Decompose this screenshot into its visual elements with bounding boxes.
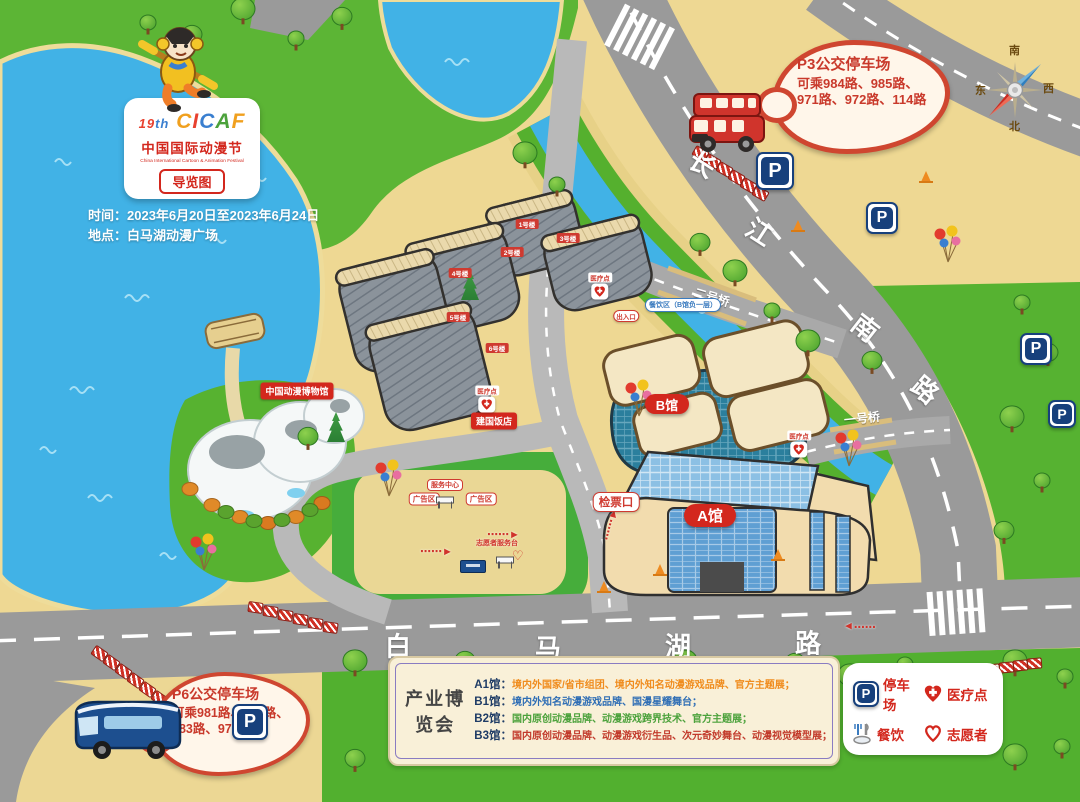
tree-icon <box>298 427 319 450</box>
tree-icon <box>332 7 353 30</box>
brand-letter: C <box>176 110 192 133</box>
medical-heart-icon <box>594 286 607 298</box>
hall-number-tag: 3号楼 <box>557 233 580 243</box>
balloons-icon <box>185 532 223 579</box>
ticket-gate-label: 检票口 <box>593 492 640 512</box>
heart-outline-icon <box>923 724 943 743</box>
road-name-char: 路 <box>795 624 821 661</box>
tree-icon <box>690 233 711 256</box>
compass-north-label: 北 <box>1009 118 1020 134</box>
bush-icon <box>246 514 263 528</box>
traffic-cone-icon <box>599 581 609 592</box>
direction-arrow-icon: ⋯⋯► <box>420 545 453 558</box>
bush-icon <box>218 505 235 519</box>
parking-sign-east2: P <box>1048 400 1076 428</box>
parking-sign-p6: P <box>232 704 268 740</box>
medical-point-marker: 医疗点 <box>588 273 612 300</box>
mascot-illustration <box>130 20 226 112</box>
tree-icon <box>345 749 366 772</box>
barrier-icon <box>262 605 278 618</box>
traffic-cone-icon <box>793 220 803 231</box>
expo-rows: A1馆：境内外国家/省市组团、境内外知名动漫游戏品牌、官方主题展； B1馆：境内… <box>474 680 832 742</box>
legend-dining: 餐饮 <box>853 723 904 745</box>
tree-icon <box>723 259 748 286</box>
compass-west-label: 西 <box>1043 80 1054 96</box>
hall-b-badge: B馆 <box>645 394 689 414</box>
hall-number-tag: 1号楼 <box>516 219 539 229</box>
tree-icon <box>1003 743 1028 770</box>
edition-suffix: th <box>155 116 169 131</box>
expo-row: B1馆：境内外知名动漫游戏品牌、国漫星耀舞台； <box>474 697 832 708</box>
barrier-icon <box>277 609 293 622</box>
event-place: 地点：白马湖动漫广场 <box>88 226 319 246</box>
compass-south-label: 南 <box>1009 42 1020 58</box>
event-info: 时间：2023年6月20日至2023年6月24日 地点：白马湖动漫广场 <box>88 206 319 246</box>
brand-letter: C <box>199 110 215 133</box>
brand-letter: F <box>232 110 246 133</box>
gate-label: 出入口 <box>613 310 639 322</box>
medical-heart-icon <box>481 399 494 411</box>
bush-icon <box>302 503 319 517</box>
volunteer-desk-label: 志愿者服务台 <box>476 538 518 548</box>
medical-heart-icon <box>923 684 943 703</box>
service-desk-icon <box>436 497 454 504</box>
tree-icon <box>764 303 781 323</box>
ad-zone-label: 广告区 <box>409 493 440 506</box>
sign-board-icon <box>460 560 486 573</box>
barrier-icon <box>292 613 308 626</box>
tree-icon <box>1054 739 1071 759</box>
festival-logo-card: 19th CICAF 中国国际动漫节 China International C… <box>124 98 260 199</box>
medical-point-marker: 医疗点 <box>787 431 811 458</box>
tree-icon <box>994 521 1015 544</box>
parking-sign-east1: P <box>1020 333 1052 365</box>
expo-legend-box: 产业博览会 A1馆：境内外国家/省市组团、境内外知名动漫游戏品牌、官方主题展； … <box>388 656 840 766</box>
p3-routes: 可乘984路、985路、971路、972路、114路 <box>797 76 935 108</box>
tree-icon <box>549 177 566 197</box>
expo-legend-inner: 产业博览会 A1馆：境内外国家/省市组团、境内外知名动漫游戏品牌、官方主题展； … <box>395 663 833 759</box>
hall-number-tag: 5号楼 <box>447 312 470 322</box>
compass-east-label: 东 <box>975 82 986 98</box>
brand-letter: A <box>215 110 231 133</box>
tree-icon <box>1057 669 1074 689</box>
map-icon-legend: P 停车场 医疗点 餐饮 志愿者 <box>843 663 1003 755</box>
hall-number-tag: 6号楼 <box>486 343 509 353</box>
dining-area-label: 餐饮区（B馆负一层） <box>645 298 721 312</box>
hall-number-tag: 2号楼 <box>501 247 524 257</box>
pine-tree-icon <box>327 412 345 442</box>
legend-medical: 医疗点 <box>923 684 988 704</box>
direction-arrow-icon: ⋯⋯► <box>600 507 621 542</box>
compass: 南 北 东 西 <box>975 46 1055 132</box>
hall-number-tag: 4号楼 <box>449 268 472 278</box>
balloons-icon <box>830 428 868 475</box>
expo-row: B3馆：国内原创动漫品牌、动漫游戏衍生品、次元奇妙舞台、动漫视觉模型展； <box>474 731 832 742</box>
barrier-icon <box>307 617 323 630</box>
parking-icon: P <box>853 681 879 707</box>
guide-map-badge: 导览图 <box>159 169 224 194</box>
parking-sign-ne: P <box>866 202 898 234</box>
museum-banner: 中国动漫博物馆 <box>260 383 333 400</box>
tree-icon <box>796 329 821 356</box>
direction-arrow-icon: ⋯⋯► <box>843 620 876 633</box>
expo-row: B2馆：国内原创动漫品牌、动漫游戏跨界技术、官方主题展； <box>474 714 832 725</box>
tree-icon <box>513 141 538 168</box>
tree-icon <box>1034 473 1051 493</box>
traffic-cone-icon <box>773 549 783 560</box>
expo-title: 产业博览会 <box>396 685 474 737</box>
p6-title: P6公交停车场 <box>172 684 306 704</box>
tree-icon <box>1000 405 1025 432</box>
hotel-banner: 建国饭店 <box>471 413 517 430</box>
ad-zone-label: 广告区 <box>466 493 497 506</box>
legend-parking: P 停车场 <box>853 674 923 714</box>
coach-bus-icon <box>68 692 186 764</box>
festival-title-en: China International Cartoon & Animation … <box>124 159 260 164</box>
tree-icon <box>1014 295 1031 315</box>
event-time: 时间：2023年6月20日至2023年6月24日 <box>88 206 319 226</box>
cicaf-logotype: 19th CICAF <box>124 112 260 134</box>
barrier-icon <box>247 601 263 614</box>
traffic-cone-icon <box>921 171 931 182</box>
tree-icon <box>231 0 256 24</box>
service-center-label: 服务中心 <box>427 479 463 491</box>
hall-a-badge: A馆 <box>684 504 736 527</box>
festival-guide-map: ⋯⋯►⋯⋯►⋯⋯►⋯⋯► 19th CICAF 中国国际动漫节 China In… <box>0 0 1080 802</box>
edition-number: 19 <box>139 116 155 131</box>
traffic-cone-icon <box>655 564 665 575</box>
barrier-icon <box>1027 657 1043 669</box>
medical-heart-icon <box>793 444 806 456</box>
expo-row: A1馆：境内外国家/省市组团、境内外知名动漫游戏品牌、官方主题展； <box>474 680 832 691</box>
balloons-icon <box>370 458 408 505</box>
heart-icon: ♡ <box>512 548 524 564</box>
p3-title: P3公交停车场 <box>797 53 945 74</box>
legend-volunteer: 志愿者 <box>923 724 988 744</box>
tree-icon <box>288 31 305 51</box>
medical-point-marker: 医疗点 <box>475 386 499 413</box>
bush-icon <box>182 482 199 496</box>
barrier-icon <box>322 621 338 634</box>
balloons-icon <box>929 224 967 271</box>
tree-icon <box>343 649 368 676</box>
double-decker-bus-icon <box>686 84 768 158</box>
tree-icon <box>862 351 883 374</box>
bush-icon <box>274 513 291 527</box>
festival-title-cn: 中国国际动漫节 <box>124 137 260 157</box>
dining-icon <box>853 723 873 745</box>
